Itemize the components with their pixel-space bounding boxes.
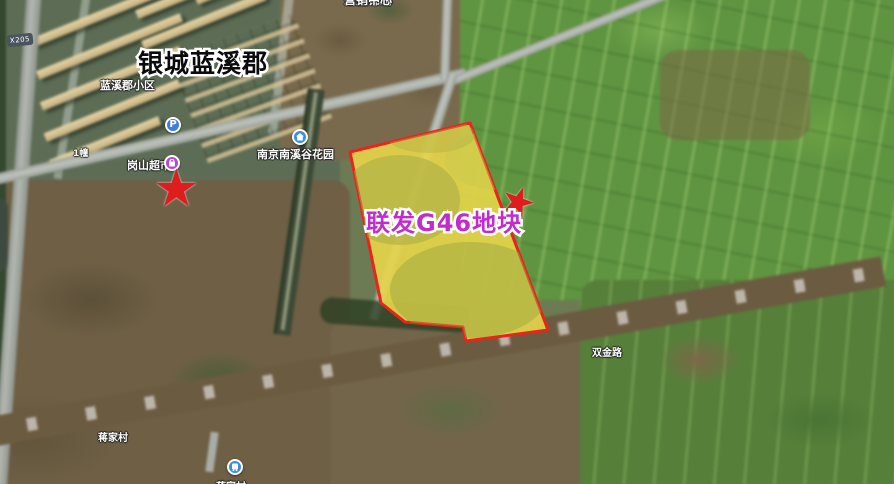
building-number-label: 1幢	[73, 146, 88, 159]
garden-label[interactable]: 南京南溪谷花园	[257, 146, 334, 162]
community-sub-label[interactable]: 蓝溪郡小区	[100, 77, 155, 93]
satellite-map-canvas[interactable]: X205 银城蓝溪郡 银城蓝溪郡 蓝溪郡小区 1幢 P 岗山超市 南京南溪谷花园…	[0, 0, 894, 484]
station-label-clipped: 蒋家村	[216, 478, 246, 484]
star-marker-left: ★	[153, 163, 200, 215]
road-name-label-east: 双金路	[592, 344, 622, 359]
plot-overlay	[0, 0, 894, 484]
residence-icon[interactable]	[292, 129, 308, 145]
parking-icon[interactable]: P	[165, 117, 181, 133]
transit-station-icon[interactable]	[227, 459, 243, 475]
village-label: 蒋家村	[98, 429, 128, 444]
